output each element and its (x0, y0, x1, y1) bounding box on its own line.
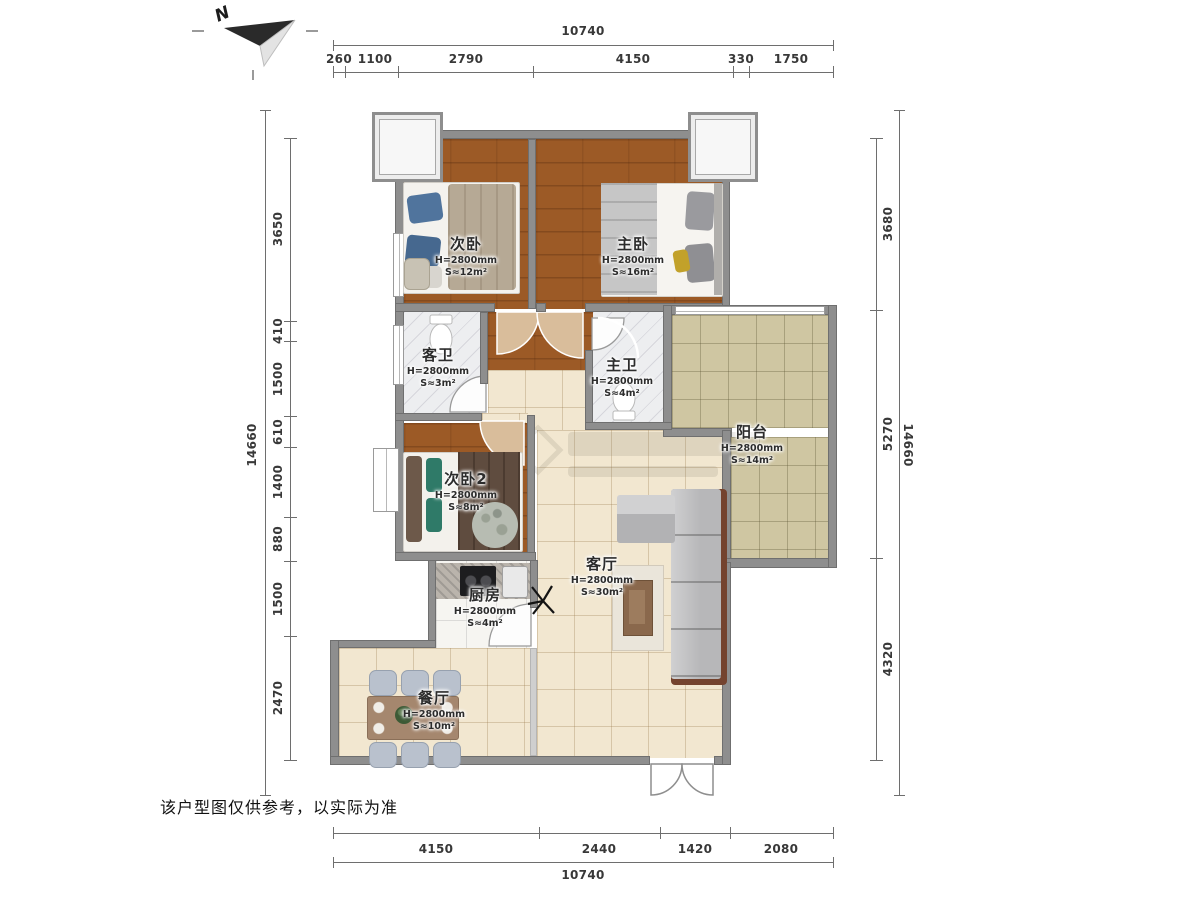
dim-top-seg: 1750 (774, 52, 809, 66)
dim-tick (333, 827, 334, 839)
dim-tick (870, 760, 883, 761)
dim-right-seg: 3680 (881, 207, 895, 242)
dim-tick (660, 827, 661, 839)
dim-line (899, 110, 900, 795)
room-height: H=2800mm (721, 443, 783, 454)
dim-tick (833, 66, 834, 78)
dim-left-seg: 410 (271, 318, 285, 344)
room-name: 厨房 (454, 584, 516, 605)
room-height: H=2800mm (602, 255, 664, 266)
room-height: H=2800mm (435, 490, 497, 501)
dim-bottom-seg: 2080 (764, 842, 799, 856)
dim-tick (533, 66, 534, 78)
light-fixture-icon (528, 586, 554, 614)
dim-top-seg: 1100 (358, 52, 393, 66)
room-area: S≈4m² (591, 388, 653, 399)
dim-tick (833, 827, 834, 839)
room-area: S≈3m² (407, 378, 469, 389)
dim-top-seg: 4150 (616, 52, 651, 66)
dim-line (333, 862, 833, 863)
room-height: H=2800mm (571, 575, 633, 586)
room-label-master: 主卧 H=2800mm S≈16m² (602, 233, 664, 278)
dim-tick (730, 827, 731, 839)
dim-line (876, 138, 877, 760)
fixture-layer (0, 0, 1200, 900)
dim-tick (284, 561, 297, 562)
entry-door-left (651, 764, 682, 795)
room-area: S≈12m² (435, 267, 497, 278)
dim-right-seg: 5270 (881, 417, 895, 452)
room-height: H=2800mm (407, 366, 469, 377)
bed-bedroom2-pillow-1 (406, 192, 444, 224)
dim-left-seg: 3650 (271, 212, 285, 247)
dim-left-seg: 1400 (271, 465, 285, 500)
dim-top-seg: 330 (728, 52, 754, 66)
dim-line (265, 110, 266, 795)
dining-chair (401, 742, 429, 768)
dim-line (290, 138, 291, 760)
dim-bottom-seg: 1420 (678, 842, 713, 856)
dim-top-seg: 260 (326, 52, 352, 66)
dim-tick (870, 138, 883, 139)
sofa-chaise (617, 495, 675, 543)
dim-tick (870, 558, 883, 559)
dim-left-seg: 610 (271, 419, 285, 445)
room-name: 客厅 (571, 553, 633, 574)
dim-right-total: 14660 (901, 423, 915, 466)
room-label-dining: 餐厅 H=2800mm S≈10m² (403, 687, 465, 732)
dim-bottom-seg: 4150 (419, 842, 454, 856)
dim-tick (284, 760, 297, 761)
dim-tick (284, 636, 297, 637)
dim-tick (284, 447, 297, 448)
room-height: H=2800mm (435, 255, 497, 266)
room-label-master-bath: 主卫 H=2800mm S≈4m² (591, 354, 653, 399)
dim-tick (345, 66, 346, 78)
dim-tick (260, 110, 271, 111)
room-height: H=2800mm (591, 376, 653, 387)
dim-tick (333, 857, 334, 868)
room-area: S≈14m² (721, 455, 783, 466)
dim-tick (398, 66, 399, 78)
sofa-body (671, 489, 721, 679)
room-label-living: 客厅 H=2800mm S≈30m² (571, 553, 633, 598)
room-height: H=2800mm (454, 606, 516, 617)
dim-tick (833, 40, 834, 51)
dim-tick (749, 66, 750, 78)
dim-left-seg: 2470 (271, 681, 285, 716)
room-name: 阳台 (721, 421, 783, 442)
shower-glass (598, 318, 638, 358)
room-label-bedroom3: 次卧2 H=2800mm S≈8m² (435, 468, 497, 513)
bed-master-pillow-1 (685, 191, 716, 231)
chair-bedroom2 (404, 258, 430, 290)
dim-tick (333, 66, 334, 78)
dim-tick (539, 827, 540, 839)
dim-tick (333, 40, 334, 51)
dim-top-seg: 2790 (449, 52, 484, 66)
room-label-guest-bath: 客卫 H=2800mm S≈3m² (407, 344, 469, 389)
dim-left-seg: 1500 (271, 582, 285, 617)
room-name: 主卧 (602, 233, 664, 254)
room-area: S≈16m² (602, 267, 664, 278)
room-name: 餐厅 (403, 687, 465, 708)
room-name: 客卫 (407, 344, 469, 365)
dining-chair (369, 742, 397, 768)
dim-tick (894, 795, 905, 796)
guest-toilet-tank (430, 315, 452, 324)
dim-tick (733, 66, 734, 78)
dim-line (333, 45, 833, 46)
room-label-balcony: 阳台 H=2800mm S≈14m² (721, 421, 783, 466)
room-name: 次卧 (435, 233, 497, 254)
entry-door-right (682, 764, 713, 795)
dim-line (333, 72, 833, 73)
floor-plan-canvas: N (0, 0, 1200, 900)
dim-bottom-total: 10740 (561, 868, 604, 882)
dim-tick (894, 110, 905, 111)
bed-bedroom3-pillow-left (406, 456, 422, 542)
room-label-kitchen: 厨房 H=2800mm S≈4m² (454, 584, 516, 629)
room-name: 次卧2 (435, 468, 497, 489)
dim-tick (870, 310, 883, 311)
dim-tick (833, 857, 834, 868)
room-area: S≈30m² (571, 587, 633, 598)
dim-left-seg: 880 (271, 526, 285, 552)
disclaimer-text: 该户型图仅供参考，以实际为准 (160, 794, 398, 818)
dim-top-total: 10740 (561, 24, 604, 38)
room-height: H=2800mm (403, 709, 465, 720)
dim-line (333, 833, 833, 834)
dim-tick (284, 416, 297, 417)
room-area: S≈4m² (454, 618, 516, 629)
dim-tick (284, 517, 297, 518)
master-toilet-tank (613, 411, 635, 420)
room-label-bedroom2: 次卧 H=2800mm S≈12m² (435, 233, 497, 278)
dim-tick (284, 321, 297, 322)
bed-master-headboard (714, 183, 722, 295)
room-area: S≈8m² (435, 502, 497, 513)
dining-chair (369, 670, 397, 696)
dim-bottom-seg: 2440 (582, 842, 617, 856)
dim-tick (284, 341, 297, 342)
dim-tick (284, 138, 297, 139)
dining-chair (433, 742, 461, 768)
room-name: 主卫 (591, 354, 653, 375)
dim-left-seg: 1500 (271, 362, 285, 397)
dim-left-total: 14660 (245, 423, 259, 466)
dim-right-seg: 4320 (881, 642, 895, 677)
room-area: S≈10m² (403, 721, 465, 732)
